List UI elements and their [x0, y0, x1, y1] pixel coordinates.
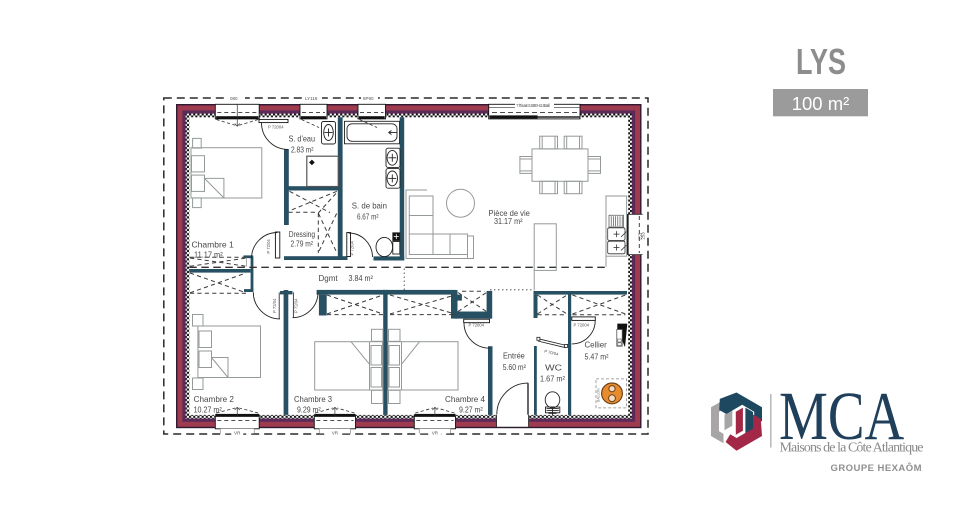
svg-text:BALLON: BALLON [597, 388, 601, 402]
svg-text:11.17 m²: 11.17 m² [194, 249, 223, 259]
svg-text:LYS: LYS [796, 41, 846, 82]
svg-text:Chambre 4: Chambre 4 [445, 394, 485, 404]
svg-text:Dgmt: Dgmt [319, 273, 339, 283]
svg-text:5.60 m²: 5.60 m² [503, 362, 526, 372]
svg-text:P 72/04: P 72/04 [294, 298, 299, 313]
svg-text:Cellier: Cellier [585, 340, 608, 350]
svg-text:253: 253 [638, 232, 643, 240]
svg-text:Tirant 180+1 Bal: Tirant 180+1 Bal [516, 103, 549, 108]
svg-text:080: 080 [230, 96, 238, 101]
svg-text:P 72004: P 72004 [469, 323, 485, 328]
svg-text:S. de bain: S. de bain [352, 200, 388, 210]
svg-text:VR: VR [432, 430, 439, 435]
svg-text:8P90: 8P90 [363, 96, 374, 101]
svg-text:VR: VR [234, 430, 241, 435]
svg-text:Chambre 3: Chambre 3 [294, 394, 332, 404]
svg-text:P 72/04: P 72/04 [272, 298, 277, 313]
svg-text:6.67 m²: 6.67 m² [357, 212, 379, 222]
svg-text:LY118: LY118 [305, 96, 318, 101]
svg-text:2.83 m²: 2.83 m² [291, 146, 314, 155]
svg-text:Chambre 1: Chambre 1 [192, 239, 235, 249]
svg-text:9.27 m²: 9.27 m² [459, 405, 483, 415]
svg-text:WC: WC [545, 363, 562, 373]
svg-text:P 72/04: P 72/04 [266, 239, 271, 254]
svg-text:2.79 m²: 2.79 m² [291, 239, 314, 248]
svg-text:Dressing: Dressing [289, 230, 315, 239]
svg-text:P 72004: P 72004 [574, 322, 590, 327]
svg-text:P 72004: P 72004 [268, 125, 284, 130]
svg-text:31.17 m²: 31.17 m² [494, 216, 523, 226]
svg-text:P 72/04: P 72/04 [350, 240, 355, 255]
svg-text:1.67 m²: 1.67 m² [540, 374, 565, 384]
svg-text:GROUPE HEXAÔM: GROUPE HEXAÔM [831, 462, 924, 474]
svg-text:Entrée: Entrée [503, 351, 525, 361]
svg-text:S. d'eau: S. d'eau [289, 135, 316, 144]
svg-text:5.47 m²: 5.47 m² [585, 352, 609, 362]
svg-text:100 m²: 100 m² [792, 93, 850, 114]
svg-text:VR: VR [332, 430, 339, 435]
svg-text:10.27 m²: 10.27 m² [194, 405, 222, 415]
svg-text:3.84 m²: 3.84 m² [349, 273, 374, 283]
svg-text:9.29 m²: 9.29 m² [297, 405, 321, 415]
svg-text:Maisons de la Côte Atlantique: Maisons de la Côte Atlantique [780, 441, 924, 456]
svg-text:Chambre 2: Chambre 2 [194, 394, 235, 404]
